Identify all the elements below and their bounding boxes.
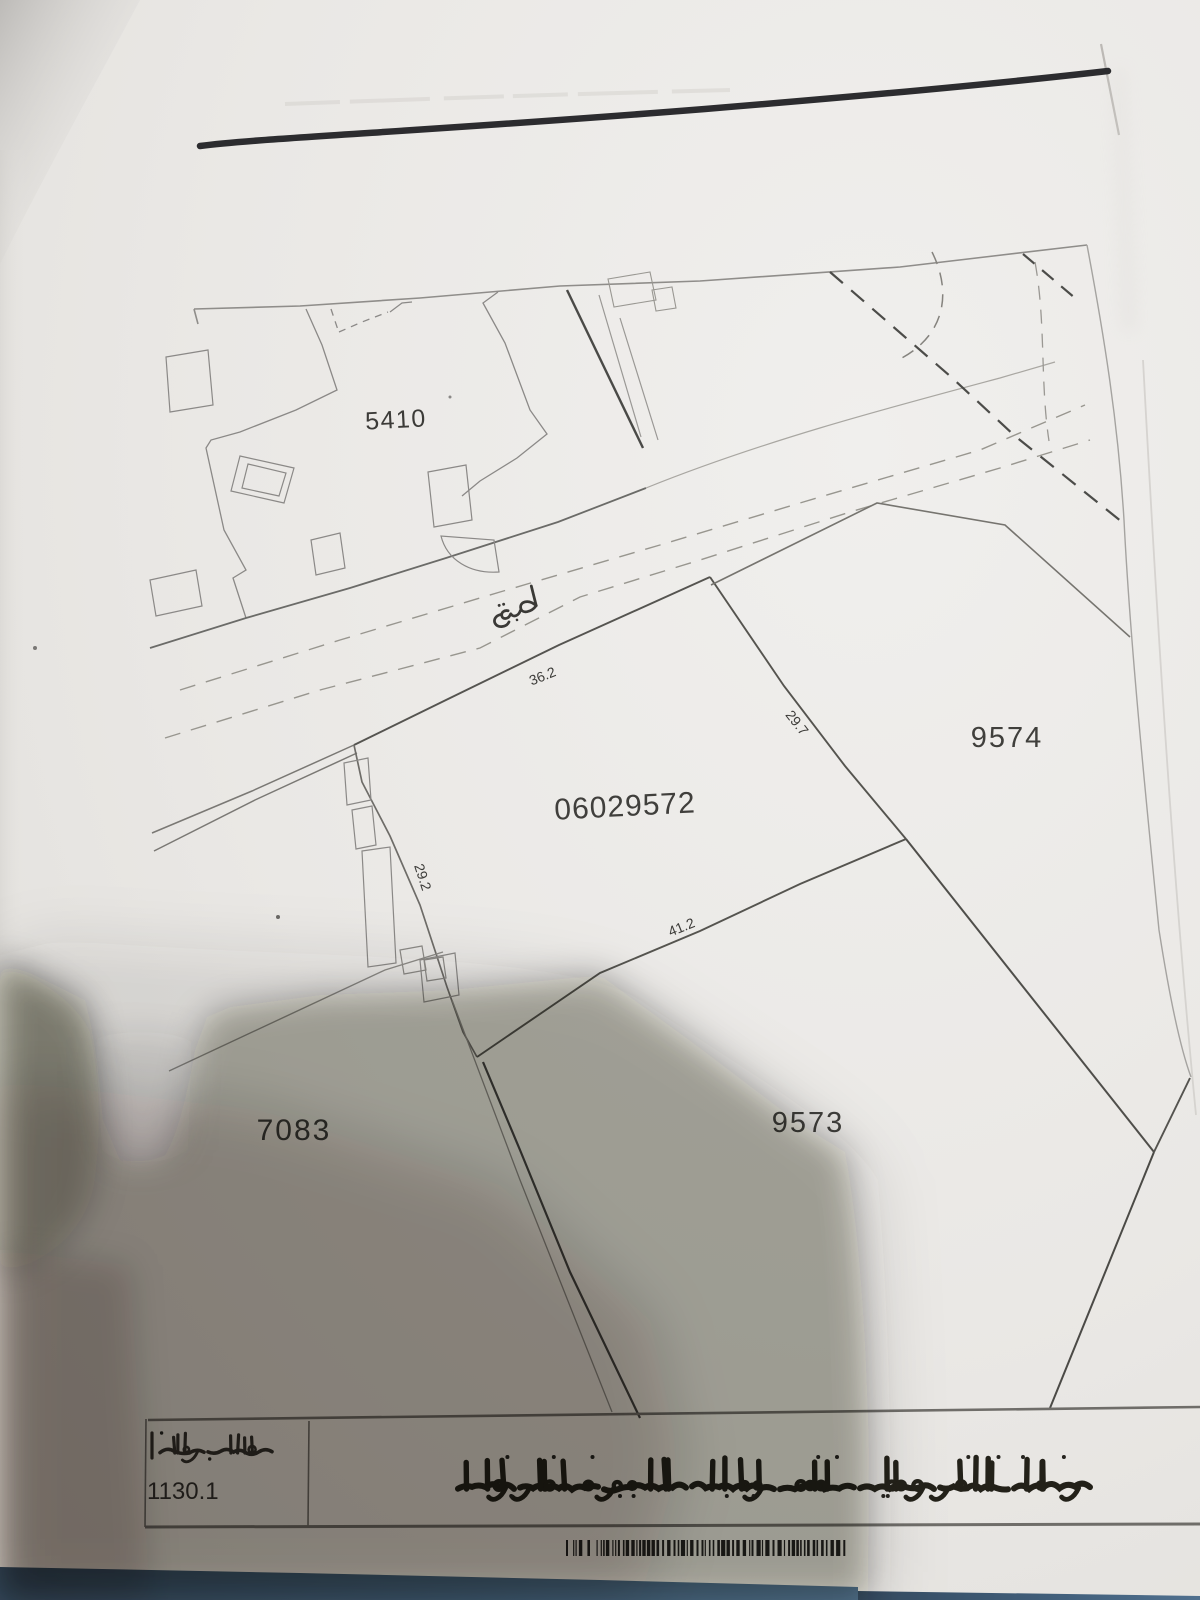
svg-text:9574: 9574	[971, 722, 1044, 754]
svg-text:5410: 5410	[364, 404, 427, 435]
